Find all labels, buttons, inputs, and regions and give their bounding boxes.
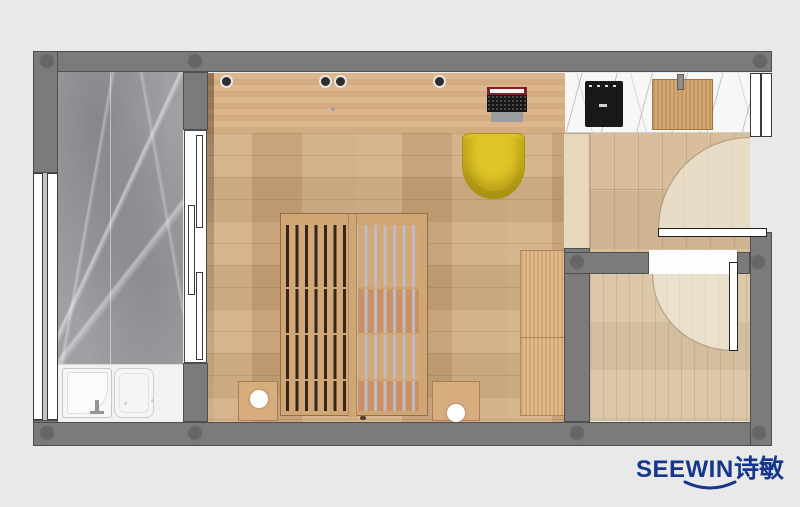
wardrobe-seam: [521, 337, 564, 338]
bathroom-marble-floor: [58, 72, 183, 364]
column-dot-4: [39, 425, 55, 441]
tub-seat: [67, 372, 108, 414]
entry-cabinet: [563, 133, 590, 249]
bed-slats-r2-right: [355, 289, 419, 333]
desk-chair-seat: [470, 137, 517, 191]
wall-room-left: [564, 248, 590, 422]
bed: [280, 213, 428, 416]
wall-left-upper: [33, 51, 58, 173]
board-handle: [677, 74, 684, 90]
brand-logo-cjk: 诗敏: [734, 457, 784, 482]
bed-slats-r1-right: [355, 225, 419, 287]
shower-tray: [114, 368, 154, 418]
cooktop: [585, 81, 623, 127]
desk-edge-shadow: [207, 73, 214, 421]
desk-grommet-1: [222, 77, 231, 86]
shower-tray-inner: [119, 373, 149, 413]
bed-slats-r1-left: [286, 225, 350, 287]
wall-divider-bottom: [183, 363, 208, 422]
column-dot-9: [750, 254, 766, 270]
room-door-opening: [649, 250, 737, 274]
desk-dot: [331, 107, 335, 111]
wardrobe: [520, 250, 565, 416]
cooktop-knob-3: [605, 85, 608, 87]
cooktop-knob-2: [597, 85, 600, 87]
brand-logo-latin: SEEWIN: [636, 458, 734, 482]
room-door-leaf: [729, 262, 738, 351]
lamp-right: [447, 404, 465, 422]
desk-grommet-2: [321, 77, 330, 86]
bed-slats-r4-right: [355, 381, 419, 411]
bed-center-rail: [348, 214, 357, 417]
cooktop-knob-1: [589, 85, 592, 87]
wall-stub-right: [737, 252, 750, 274]
window-left-pane-outer: [33, 173, 43, 420]
window-left-pane-inner: [47, 173, 58, 420]
brand-logo-swoosh: [682, 480, 738, 493]
drain-dot-2: [151, 399, 154, 402]
bed-slats-r2-left: [286, 289, 350, 333]
window-right-pane-inner: [761, 73, 772, 137]
cooktop-display: [599, 104, 607, 107]
wall-top: [33, 51, 772, 72]
bed-slats-r3-right: [355, 335, 419, 379]
marble-tile-seam: [110, 72, 111, 364]
laptop: [487, 87, 527, 122]
laptop-palmrest: [491, 112, 523, 122]
drain-dot-1: [124, 402, 127, 405]
entry-door-leaf: [658, 228, 767, 237]
desk-grommet-3: [336, 77, 345, 86]
column-dot-5: [187, 425, 203, 441]
desk-chair: [462, 133, 525, 199]
brand-logo: SEEWIN 诗敏: [630, 452, 795, 496]
laptop-screen: [490, 89, 524, 93]
wall-bottom: [33, 422, 772, 446]
sliding-door-panel-1: [196, 135, 203, 228]
column-dot-7: [751, 425, 767, 441]
floorplan-canvas: SEEWIN 诗敏: [0, 0, 800, 507]
walk-in-tub: [62, 368, 112, 418]
sliding-door-panel-2: [188, 205, 195, 295]
column-dot-8: [569, 254, 585, 270]
bed-foot-knob: [360, 416, 366, 420]
cooktop-knob-4: [613, 85, 616, 87]
bed-slats-r4-left: [286, 381, 350, 411]
desk-grommet-4: [435, 77, 444, 86]
column-dot-2: [187, 53, 203, 69]
column-dot-1: [39, 53, 55, 69]
laptop-keyboard: [487, 95, 527, 112]
bed-slats-r3-left: [286, 335, 350, 379]
sliding-door-panel-3: [196, 272, 203, 360]
laptop-screen-bezel: [487, 87, 527, 95]
wall-divider-top: [183, 72, 208, 130]
lamp-left: [250, 390, 268, 408]
column-dot-6: [569, 425, 585, 441]
column-dot-3: [752, 53, 768, 69]
window-right-pane-outer: [750, 73, 761, 137]
tub-faucet-spout: [90, 411, 104, 414]
